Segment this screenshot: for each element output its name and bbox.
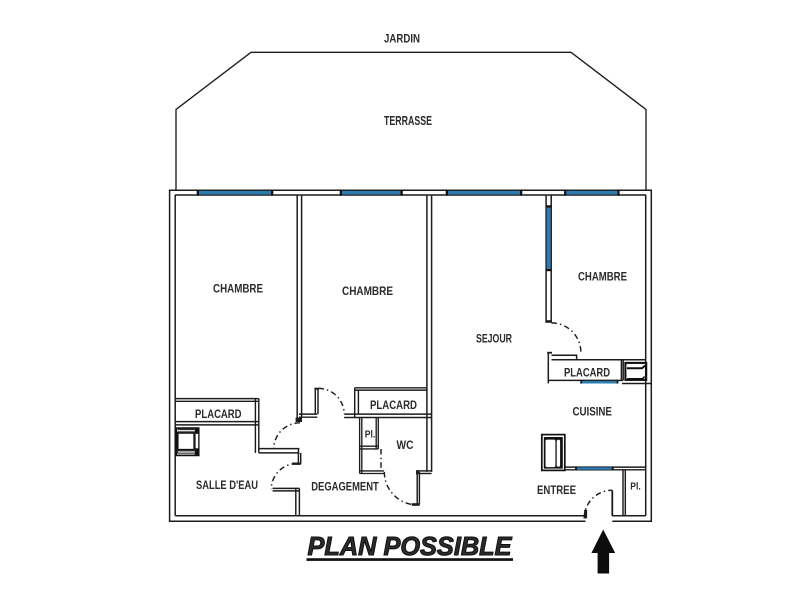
svg-text:PLAN POSSIBLE: PLAN POSSIBLE [308, 531, 513, 561]
svg-text:CHAMBRE: CHAMBRE [578, 270, 627, 284]
svg-text:Pl.: Pl. [630, 481, 641, 492]
svg-text:CHAMBRE: CHAMBRE [342, 284, 393, 298]
svg-text:CHAMBRE: CHAMBRE [213, 281, 263, 295]
svg-text:JARDIN: JARDIN [384, 32, 420, 46]
svg-text:PLACARD: PLACARD [564, 365, 610, 379]
svg-text:SALLE D'EAU: SALLE D'EAU [196, 478, 258, 492]
svg-text:ENTREE: ENTREE [537, 483, 576, 497]
svg-text:PLACARD: PLACARD [195, 407, 242, 421]
svg-text:CUISINE: CUISINE [572, 404, 612, 418]
svg-text:TERRASSE: TERRASSE [384, 114, 432, 128]
svg-text:PLACARD: PLACARD [370, 398, 417, 412]
svg-text:SEJOUR: SEJOUR [476, 331, 512, 345]
svg-text:Pl.: Pl. [365, 430, 376, 441]
svg-text:WC: WC [397, 438, 414, 452]
svg-text:DEGAGEMENT: DEGAGEMENT [311, 479, 379, 493]
